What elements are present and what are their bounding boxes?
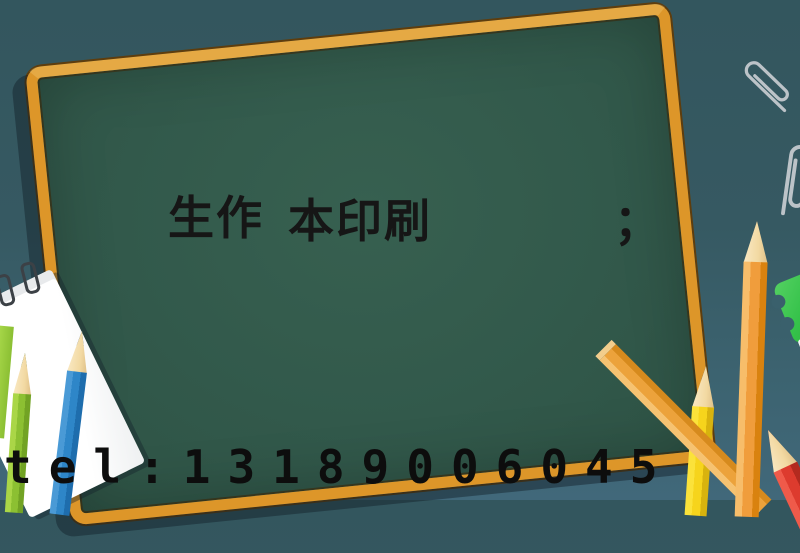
pencil-wood [744, 221, 769, 264]
pencil-body [735, 262, 768, 518]
notepad-ring [0, 273, 16, 308]
paperclip-icon [729, 48, 800, 125]
pencil-body [774, 462, 800, 553]
pencil-wood [13, 352, 34, 395]
pencil-sharpener [772, 264, 800, 398]
pencil-wood [692, 365, 717, 408]
phone-number-text: tel:13189006045 [4, 440, 674, 494]
notepad-ring [19, 261, 41, 296]
red-pencil [756, 425, 800, 553]
orange-pencil [735, 221, 769, 518]
paperclip-icon [770, 132, 800, 230]
